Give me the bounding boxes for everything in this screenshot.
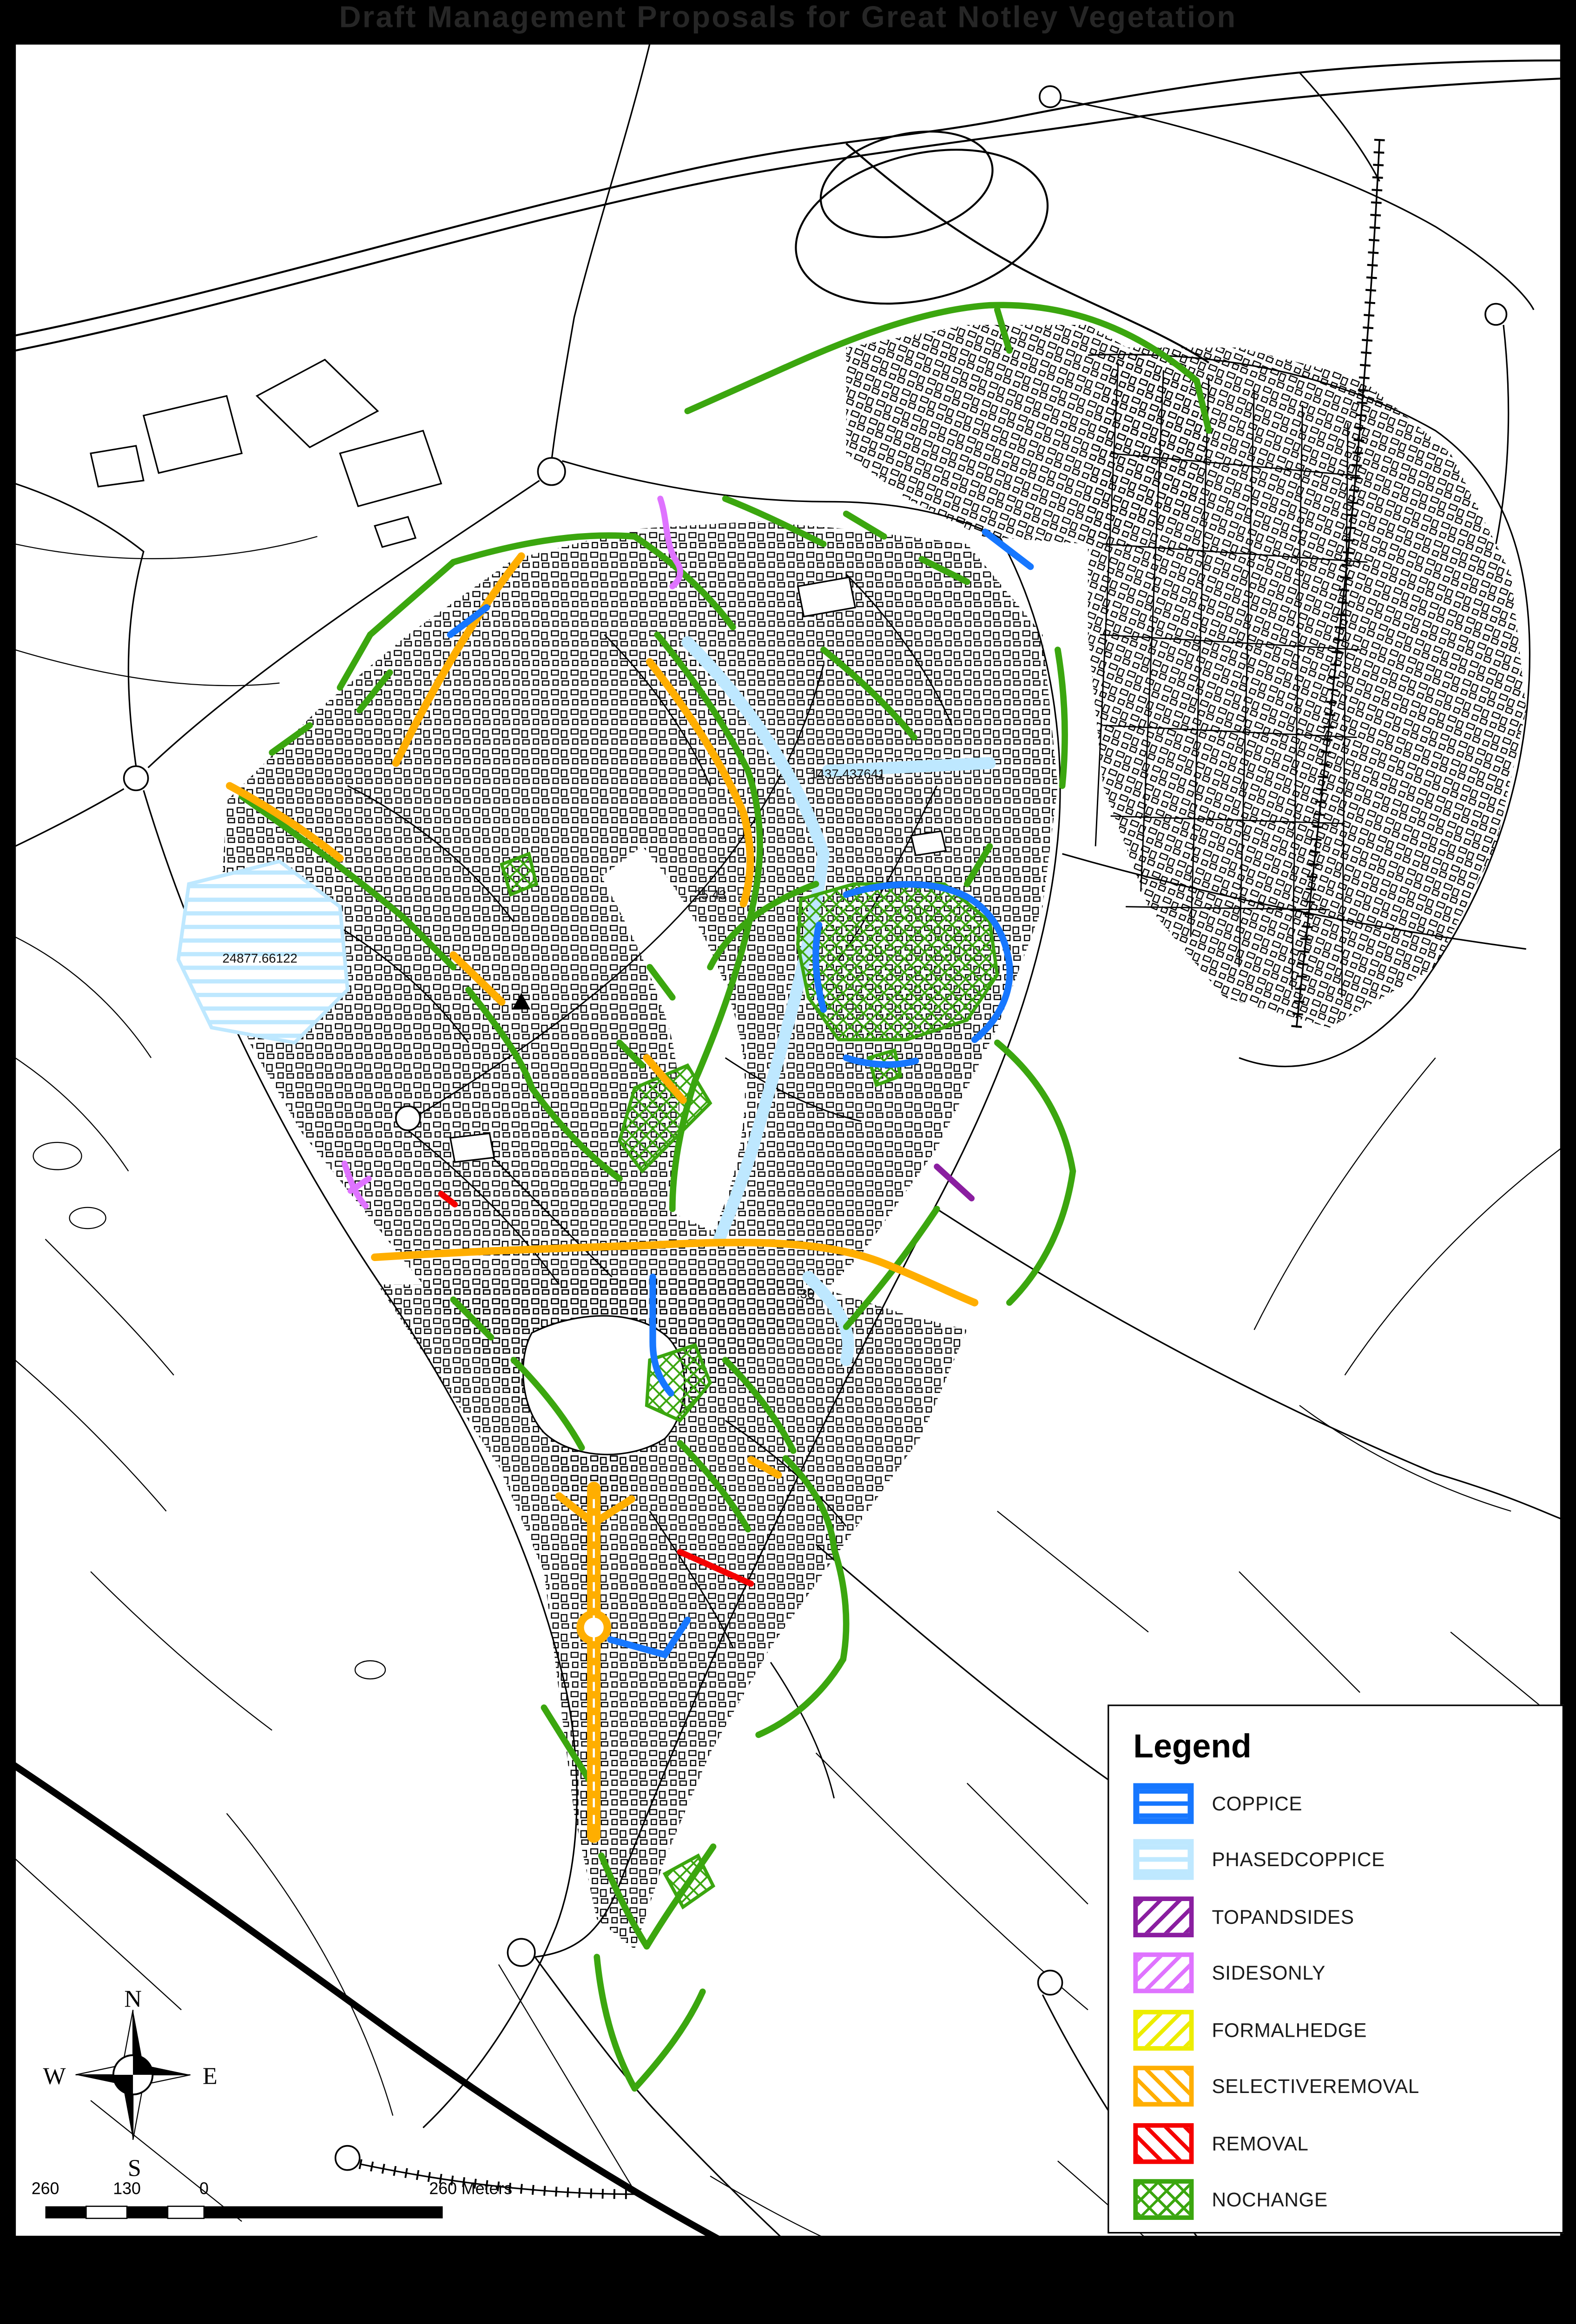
legend-item-coppice: COPPICE <box>1133 1783 1562 1823</box>
legend-swatch-selectiveremoval <box>1133 2066 1194 2106</box>
compass-east-label: E <box>203 2063 218 2089</box>
compass-north-label: N <box>124 1986 142 2013</box>
legend-swatch-coppice <box>1133 1783 1194 1823</box>
legend-swatch-formalhedge <box>1133 2009 1194 2050</box>
legend-item-phasedcoppice: PHASEDCOPPICE <box>1133 1839 1562 1880</box>
legend-label: COPPICE <box>1212 1791 1302 1814</box>
legend-swatch-topandsides <box>1133 1896 1194 1937</box>
area-label-1: 24877.66122 <box>223 951 297 965</box>
page-title: Draft Management Proposals for Great Not… <box>0 1 1576 36</box>
legend-swatch-removal <box>1133 2122 1194 2163</box>
legend-rows: COPPICEPHASEDCOPPICETOPANDSIDESSIDESONLY… <box>1109 1783 1562 2220</box>
legend-swatch-phasedcoppice <box>1133 1839 1194 1880</box>
legend-label: SELECTIVEREMOVAL <box>1212 2075 1419 2098</box>
legend-item-selectiveremoval: SELECTIVEREMOVAL <box>1133 2066 1562 2106</box>
legend-item-formalhedge: FORMALHEDGE <box>1133 2009 1562 2050</box>
area-label-2: 1437.437641 <box>810 766 885 781</box>
compass-south-label: S <box>128 2155 141 2182</box>
legend-label: SIDESONLY <box>1212 1961 1325 1984</box>
area-label-4: .36 <box>797 1287 814 1301</box>
legend-box: Legend COPPICEPHASEDCOPPICETOPANDSIDESSI… <box>1108 1704 1564 2233</box>
legend-label: FORMALHEDGE <box>1212 2018 1367 2041</box>
scale-tick-0: 0 <box>199 2179 209 2198</box>
scale-tick-260: 260 <box>32 2179 59 2198</box>
legend-item-topandsides: TOPANDSIDES <box>1133 1896 1562 1937</box>
legend-swatch-sidesonly <box>1133 1953 1194 1994</box>
scale-end-label: 260 Meters <box>429 2179 512 2198</box>
legend-item-nochange: NOCHANGE <box>1133 2179 1562 2220</box>
area-label-3: 25.43 <box>694 887 726 902</box>
legend-swatch-nochange <box>1133 2179 1194 2220</box>
legend-label: REMOVAL <box>1212 2132 1308 2154</box>
legend-label: TOPANDSIDES <box>1212 1905 1354 1928</box>
map-sheet-stage: 24877.66122 1437.437641 25.43 .36 N S W … <box>0 0 1576 2324</box>
legend-item-sidesonly: SIDESONLY <box>1133 1953 1562 1994</box>
legend-label: NOCHANGE <box>1212 2188 1327 2211</box>
legend-title: Legend <box>1133 1727 1562 1767</box>
legend-item-removal: REMOVAL <box>1133 2122 1562 2163</box>
legend-label: PHASEDCOPPICE <box>1212 1848 1385 1871</box>
scale-tick-130: 130 <box>113 2179 141 2198</box>
compass-west-label: W <box>43 2063 66 2089</box>
